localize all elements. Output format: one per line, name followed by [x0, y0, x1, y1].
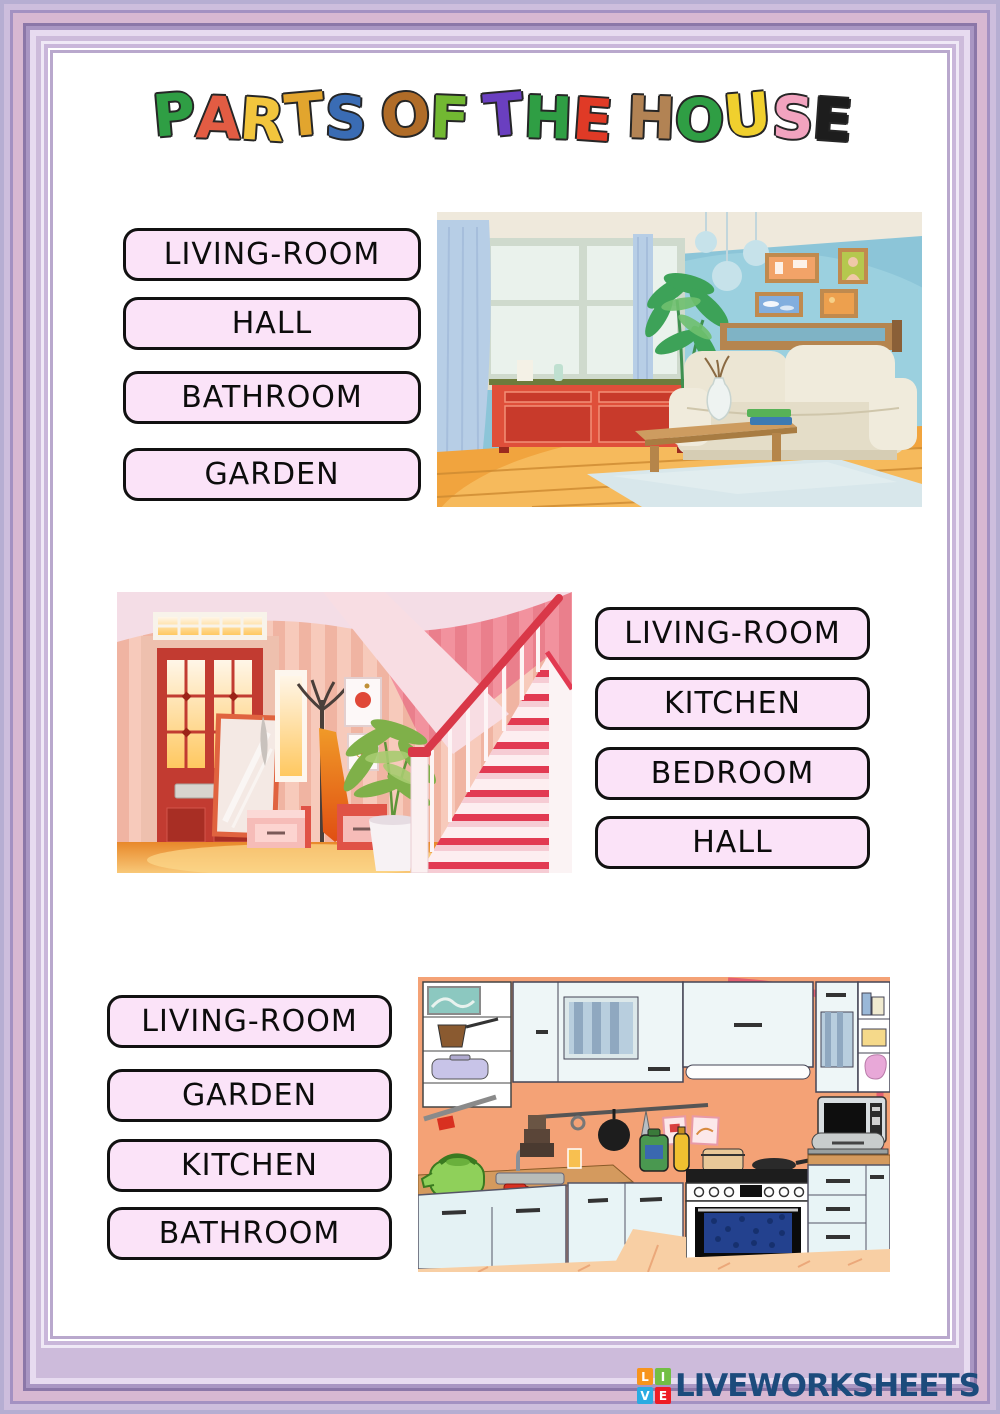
newel-post — [411, 754, 428, 873]
option-button[interactable]: BATHROOM — [123, 371, 421, 424]
counter-right — [808, 1155, 890, 1255]
worksheet-page: PARTSOFTHEHOUSE LIVING-ROOM HALL BATHROO… — [0, 0, 1000, 1414]
upper-cabinets-left — [513, 982, 683, 1082]
frame-border: PARTSOFTHEHOUSE LIVING-ROOM HALL BATHROO… — [0, 0, 1000, 1414]
logo-tile: V — [637, 1387, 653, 1404]
hall-illustration — [117, 592, 572, 873]
option-button[interactable]: LIVING-ROOM — [107, 995, 392, 1048]
oven-window — [704, 1213, 792, 1253]
title-letter: U — [722, 84, 774, 146]
title-letter: A — [194, 88, 241, 148]
logo-tile: I — [655, 1368, 671, 1385]
side-window — [275, 670, 307, 782]
title-letter: T — [282, 84, 326, 145]
option-button[interactable]: BEDROOM — [595, 747, 870, 800]
logo-tile: E — [655, 1387, 671, 1404]
option-button[interactable]: HALL — [595, 816, 870, 869]
title-letter: E — [570, 90, 614, 151]
title-letter: O — [673, 89, 726, 150]
upper-cabinet-right — [816, 982, 890, 1092]
option-button[interactable]: HALL — [123, 297, 421, 350]
title-letter: R — [238, 90, 287, 151]
upper-cabinets-center — [683, 982, 813, 1079]
option-button[interactable]: GARDEN — [107, 1069, 392, 1122]
option-button[interactable]: LIVING-ROOM — [595, 607, 870, 660]
kitchen-picture[interactable] — [418, 977, 890, 1272]
title-letter: H — [626, 88, 677, 148]
title-letter: S — [324, 88, 368, 147]
title-letter: E — [811, 90, 855, 151]
sofa — [669, 345, 917, 460]
juice-glass — [568, 1149, 581, 1168]
option-button[interactable]: BATHROOM — [107, 1207, 392, 1260]
worksheet-title: PARTSOFTHEHOUSE — [153, 67, 853, 167]
title-letter: F — [429, 88, 471, 147]
liveworksheets-footer[interactable]: LIVE LIVEWORKSHEETS — [637, 1366, 980, 1406]
title-letter: T — [482, 84, 526, 145]
living-room-picture[interactable] — [437, 212, 922, 507]
living-room-illustration — [437, 212, 922, 507]
option-button[interactable]: KITCHEN — [107, 1139, 392, 1192]
open-shelf-unit — [423, 982, 511, 1107]
option-button[interactable]: LIVING-ROOM — [123, 228, 421, 281]
range-hood — [686, 1065, 810, 1079]
kitchen-illustration — [418, 977, 890, 1272]
frying-pan — [598, 1119, 630, 1151]
liveworksheets-brand: LIVEWORKSHEETS — [675, 1368, 980, 1404]
pot — [703, 1149, 743, 1171]
logo-tile: L — [637, 1368, 653, 1385]
bread-box — [808, 1133, 888, 1154]
title-letter: H — [523, 88, 574, 148]
liveworksheets-logo-icon: LIVE — [637, 1368, 671, 1404]
title-letter: O — [378, 84, 432, 146]
title-letter: P — [150, 84, 197, 145]
hall-picture[interactable] — [117, 592, 572, 873]
option-button[interactable]: GARDEN — [123, 448, 421, 501]
worksheet-canvas: PARTSOFTHEHOUSE LIVING-ROOM HALL BATHROO… — [53, 53, 947, 1336]
title-letter: S — [771, 88, 815, 147]
drawer-cabinet-1 — [247, 806, 311, 848]
option-button[interactable]: KITCHEN — [595, 677, 870, 730]
